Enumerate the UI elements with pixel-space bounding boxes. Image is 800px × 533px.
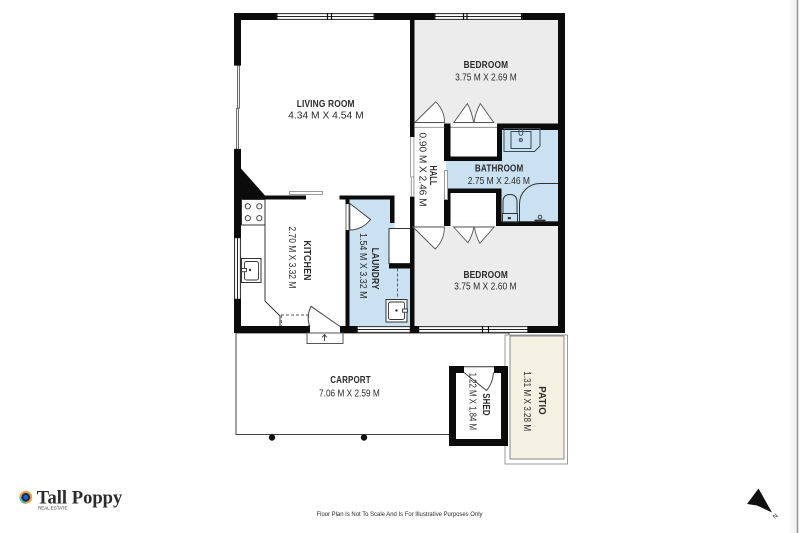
svg-text:0.90 M X 2.46 M: 0.90 M X 2.46 M — [417, 133, 428, 207]
svg-text:2.75 M X 2.46 M: 2.75 M X 2.46 M — [468, 176, 530, 187]
svg-text:REAL ESTATE: REAL ESTATE — [38, 506, 68, 511]
svg-text:BEDROOM: BEDROOM — [463, 270, 508, 281]
svg-text:2.70 M X 3.32 M: 2.70 M X 3.32 M — [286, 226, 297, 288]
svg-text:7.06 M X 2.59 M: 7.06 M X 2.59 M — [319, 388, 380, 399]
svg-text:3.75 M X 2.69 M: 3.75 M X 2.69 M — [455, 73, 517, 84]
svg-text:1.31 M X 3.28 M: 1.31 M X 3.28 M — [521, 371, 532, 431]
svg-text:BATHROOM: BATHROOM — [475, 164, 524, 175]
svg-text:LIVING ROOM: LIVING ROOM — [297, 99, 355, 110]
svg-text:CARPORT: CARPORT — [330, 375, 371, 386]
svg-text:PATIO: PATIO — [536, 386, 547, 415]
svg-text:1.54 M X 3.32 M: 1.54 M X 3.32 M — [357, 233, 368, 299]
svg-text:BEDROOM: BEDROOM — [464, 60, 509, 71]
svg-text:Floor Plan Is Not To Scale And: Floor Plan Is Not To Scale And Is For Il… — [317, 511, 484, 518]
svg-text:SHED: SHED — [480, 393, 491, 416]
svg-text:LAUNDRY: LAUNDRY — [369, 248, 380, 290]
svg-text:1.22 M X 1.84 M: 1.22 M X 1.84 M — [467, 373, 478, 430]
svg-text:4.34 M X 4.54 M: 4.34 M X 4.54 M — [288, 111, 364, 122]
svg-text:3.75 M X 2.60 M: 3.75 M X 2.60 M — [454, 282, 517, 293]
svg-text:KITCHEN: KITCHEN — [301, 240, 312, 280]
